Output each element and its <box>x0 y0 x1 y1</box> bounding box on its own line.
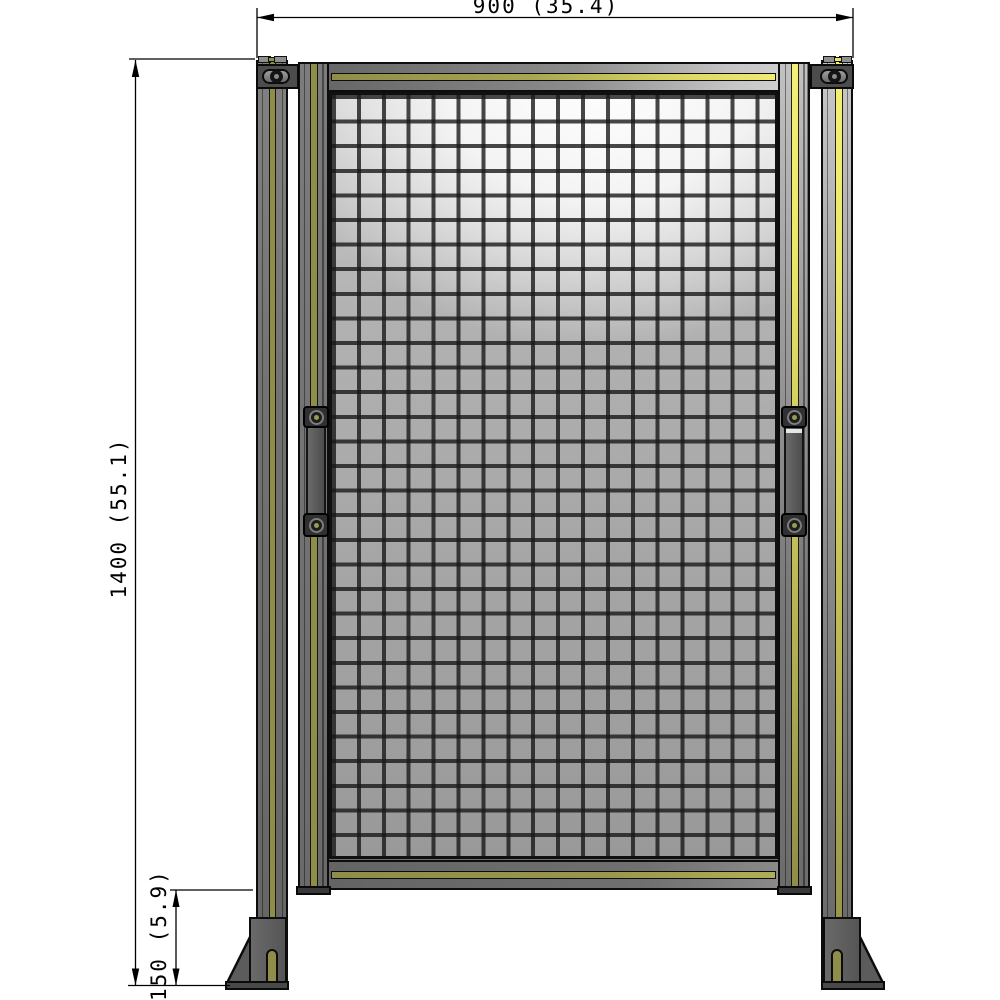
cad-drawing-canvas: 900 (35.4) 1400 (55.1) 150 (5.9) <box>0 0 1000 1000</box>
dimension-lines <box>0 0 1000 1000</box>
dimension-arrows <box>132 14 853 986</box>
